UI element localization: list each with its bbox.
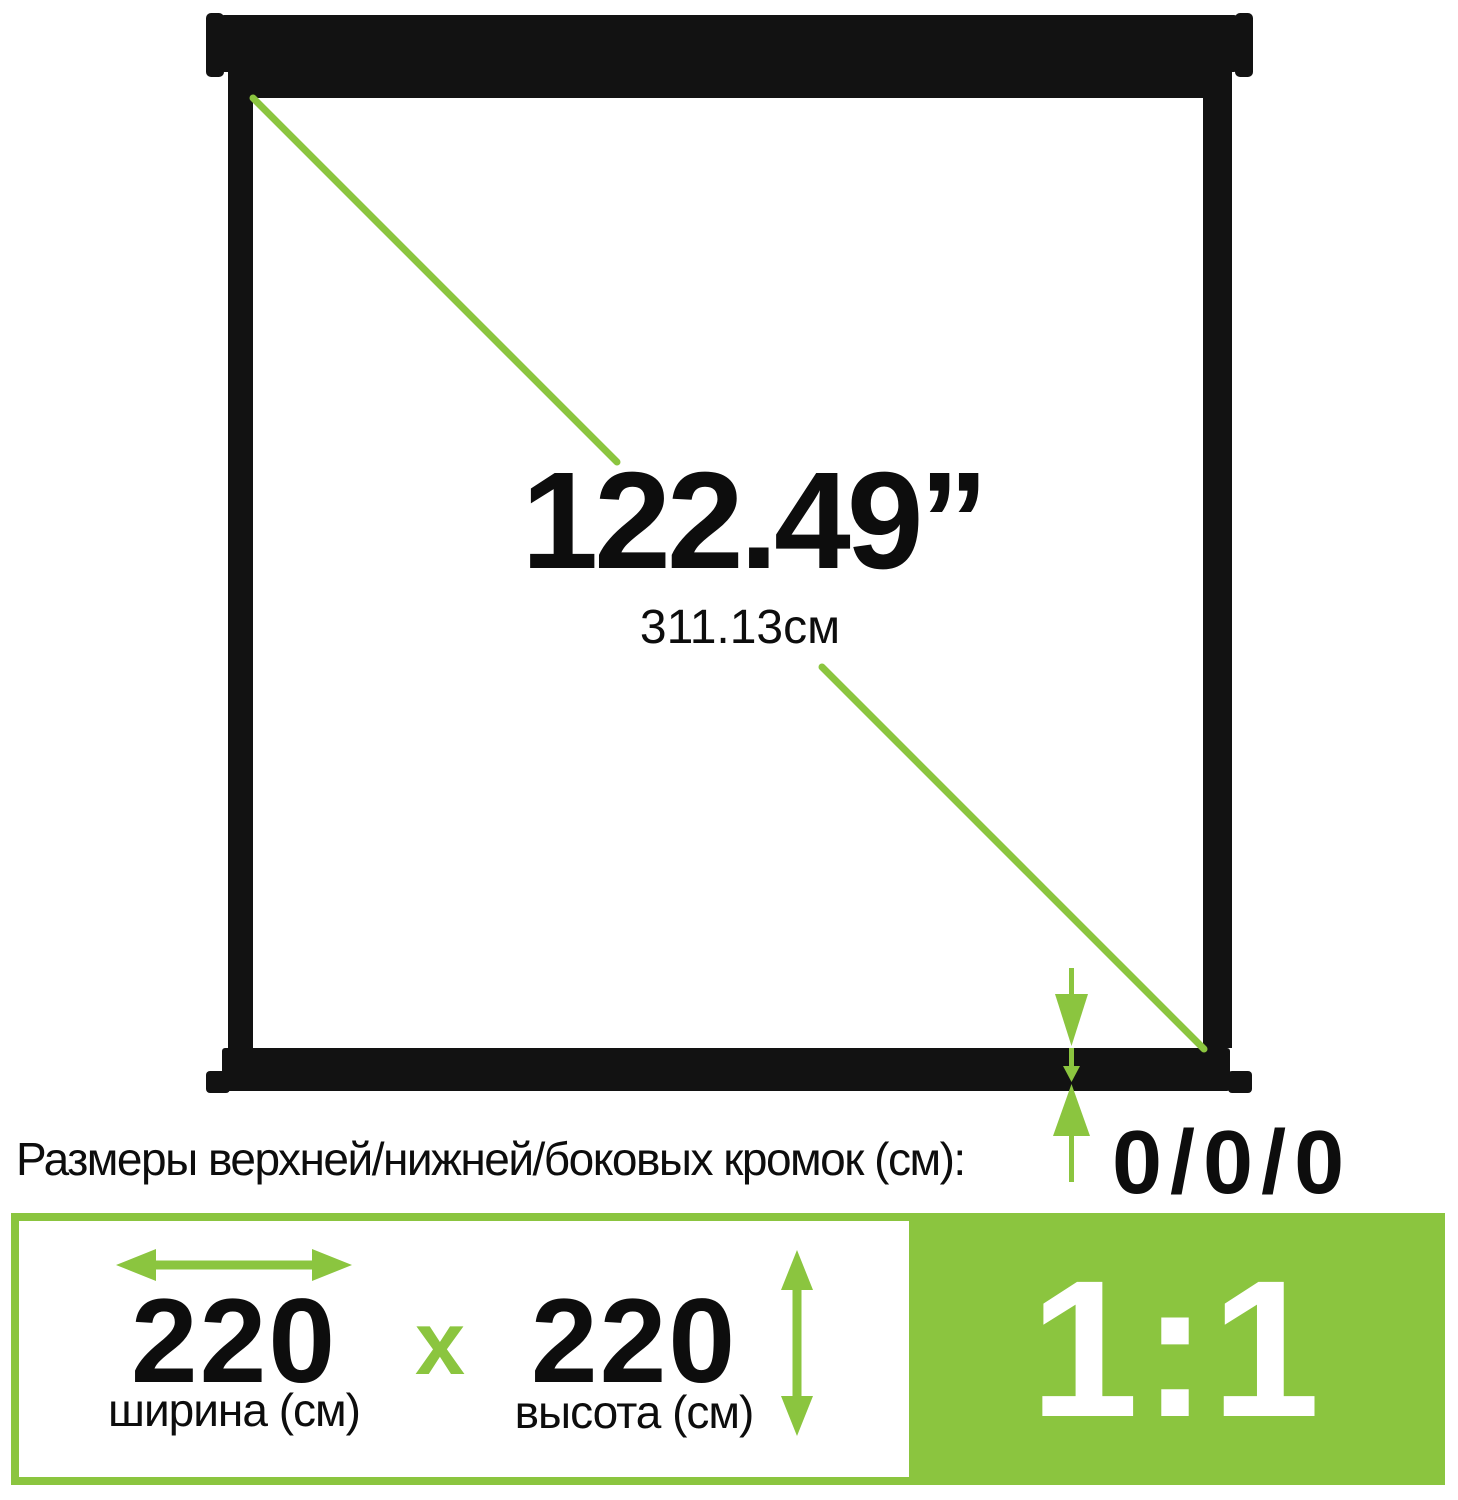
projection-screen-diagram: 122.49” 311.13см Размеры верхней/нижней/… [0,0,1458,1500]
roller-casing [219,15,1239,72]
aspect-ratio-badge: 1:1 [909,1213,1445,1485]
weight-bar-right-foot [1228,1071,1252,1093]
dimensions-panel-inner: 220 ширина (см) x 220 высота (см) 1:1 [19,1221,1437,1477]
edge-sizes-value: 0/0/0 [1112,1118,1352,1208]
diagonal-inches-value: 122.49” [278,452,1228,590]
width-label: ширина (см) [39,1387,429,1433]
height-value: 220 [439,1281,829,1401]
diagonal-size-label: 122.49” 311.13см [253,452,1203,652]
edge-sizes-label: Размеры верхней/нижней/боковых кромок (с… [16,1134,965,1185]
weight-bar-left-foot [206,1071,230,1093]
width-value: 220 [39,1281,429,1401]
height-label: высота (см) [439,1389,829,1435]
aspect-ratio-value: 1:1 [1030,1252,1324,1447]
diagonal-cm-value: 311.13см [265,604,1215,652]
bottom-weight-bar [222,1048,1230,1091]
dimensions-panel: 220 ширина (см) x 220 высота (см) 1:1 [11,1213,1445,1485]
height-double-arrow-icon [779,1248,815,1438]
